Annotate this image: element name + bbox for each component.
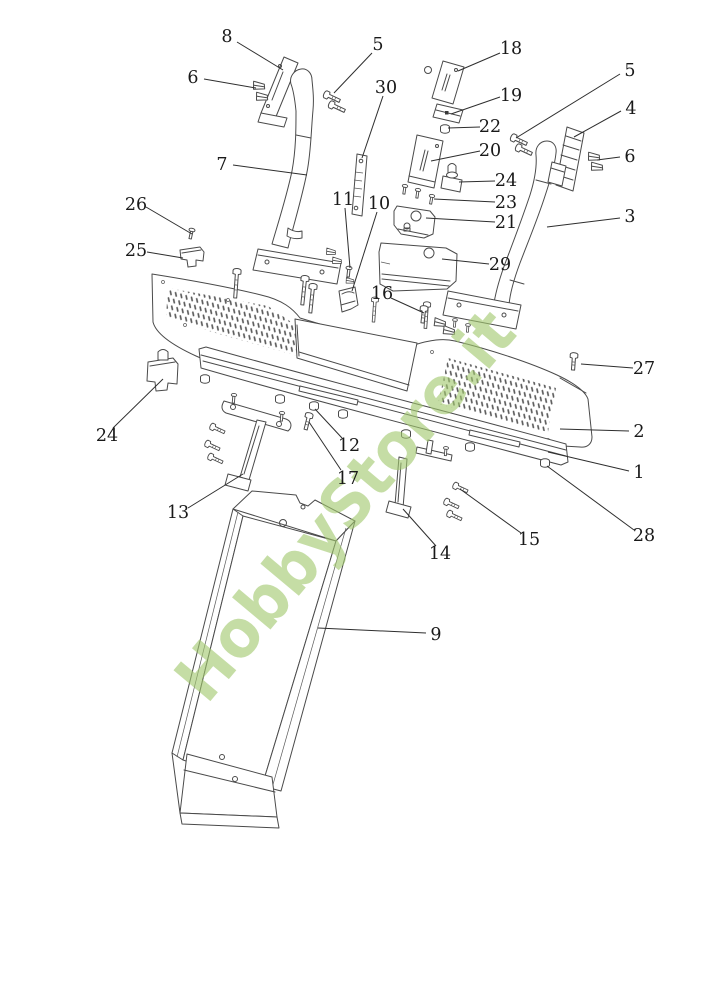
part-3-support-arm	[443, 141, 556, 332]
part-28-nut	[541, 459, 550, 467]
callout-3: 3	[624, 207, 635, 227]
callout-4: 4	[625, 99, 636, 119]
callout-15: 15	[518, 530, 540, 550]
callout-2: 2	[633, 422, 644, 442]
callout-line-6	[204, 79, 256, 88]
callout-line-3	[547, 218, 620, 227]
callout-10: 10	[368, 194, 390, 214]
callout-6: 6	[624, 147, 635, 167]
callout-16: 16	[371, 284, 393, 304]
part-15-bolts	[443, 482, 469, 523]
callout-9: 9	[430, 625, 441, 645]
callout-20: 20	[479, 141, 501, 161]
callout-17: 17	[337, 469, 359, 489]
callout-18: 18	[500, 39, 522, 59]
callout-24: 24	[96, 426, 118, 446]
callout-line-6	[597, 157, 620, 160]
exploded-parts-diagram: HobbyStore.it 85186301954222067242326321…	[0, 0, 707, 1000]
callout-26: 26	[125, 195, 147, 215]
callout-27: 27	[633, 359, 655, 379]
callout-line-12	[315, 409, 342, 438]
callout-line-24	[459, 181, 495, 182]
callout-8: 8	[221, 27, 232, 47]
callout-line-8	[237, 42, 283, 70]
callout-13: 13	[167, 503, 189, 523]
part-6-clips-right	[588, 152, 604, 172]
callout-6: 6	[187, 68, 198, 88]
parts-diagram-page: HobbyStore.it 85186301954222067242326321…	[0, 0, 707, 1000]
part-30-strip	[352, 154, 367, 216]
callout-25: 25	[125, 241, 147, 261]
part-5-bolts-left	[322, 90, 346, 114]
callout-line-24	[113, 379, 163, 428]
callout-19: 19	[500, 86, 522, 106]
callout-line-13	[188, 474, 243, 508]
part-24-clamp-left	[147, 350, 178, 392]
part-21-bracket	[394, 206, 435, 238]
callout-line-26	[146, 207, 192, 234]
callout-21: 21	[495, 213, 517, 233]
callout-24: 24	[495, 171, 517, 191]
callout-line-11	[345, 208, 350, 268]
callout-line-27	[581, 364, 633, 368]
part-20-plate	[408, 135, 443, 188]
callout-23: 23	[495, 193, 517, 213]
callout-14: 14	[429, 544, 451, 564]
callout-line-19	[451, 97, 500, 114]
callout-line-21	[426, 218, 495, 222]
part-25-clamp	[180, 247, 204, 267]
callout-line-5	[334, 53, 372, 93]
callout-line-9	[318, 628, 426, 633]
callout-line-16	[391, 298, 424, 313]
callout-line-4	[574, 111, 621, 137]
callout-line-22	[448, 127, 480, 128]
part-11-fastener	[345, 266, 355, 284]
part-19-plate	[433, 104, 463, 123]
callout-line-14	[403, 509, 436, 546]
callout-28: 28	[633, 526, 655, 546]
callout-line-10	[352, 212, 377, 291]
callout-line-17	[309, 422, 341, 470]
callout-1: 1	[633, 463, 644, 483]
part-18-plate	[425, 61, 465, 104]
part-12-nut	[310, 402, 319, 410]
callout-line-18	[458, 53, 500, 71]
part-13-bracket	[204, 393, 291, 491]
callout-22: 22	[479, 117, 501, 137]
callout-5: 5	[372, 35, 383, 55]
callout-line-15	[460, 489, 521, 533]
part-24-bolt-assembly	[441, 164, 462, 193]
callout-12: 12	[338, 436, 360, 456]
part-10-clamp	[339, 287, 358, 312]
part-5-bolts-right	[509, 133, 533, 157]
part-22-nut	[441, 125, 450, 133]
part-17-bolt	[302, 412, 314, 431]
part-6-clips-left	[253, 81, 269, 102]
callout-30: 30	[375, 78, 397, 98]
callout-11: 11	[332, 190, 354, 210]
callout-line-28	[547, 466, 634, 530]
callout-line-25	[147, 252, 183, 258]
callout-line-30	[362, 96, 383, 158]
part-27-bolt	[569, 352, 578, 370]
callout-5: 5	[624, 61, 635, 81]
callout-7: 7	[216, 155, 227, 175]
callout-line-23	[434, 199, 495, 202]
callout-29: 29	[489, 255, 511, 275]
